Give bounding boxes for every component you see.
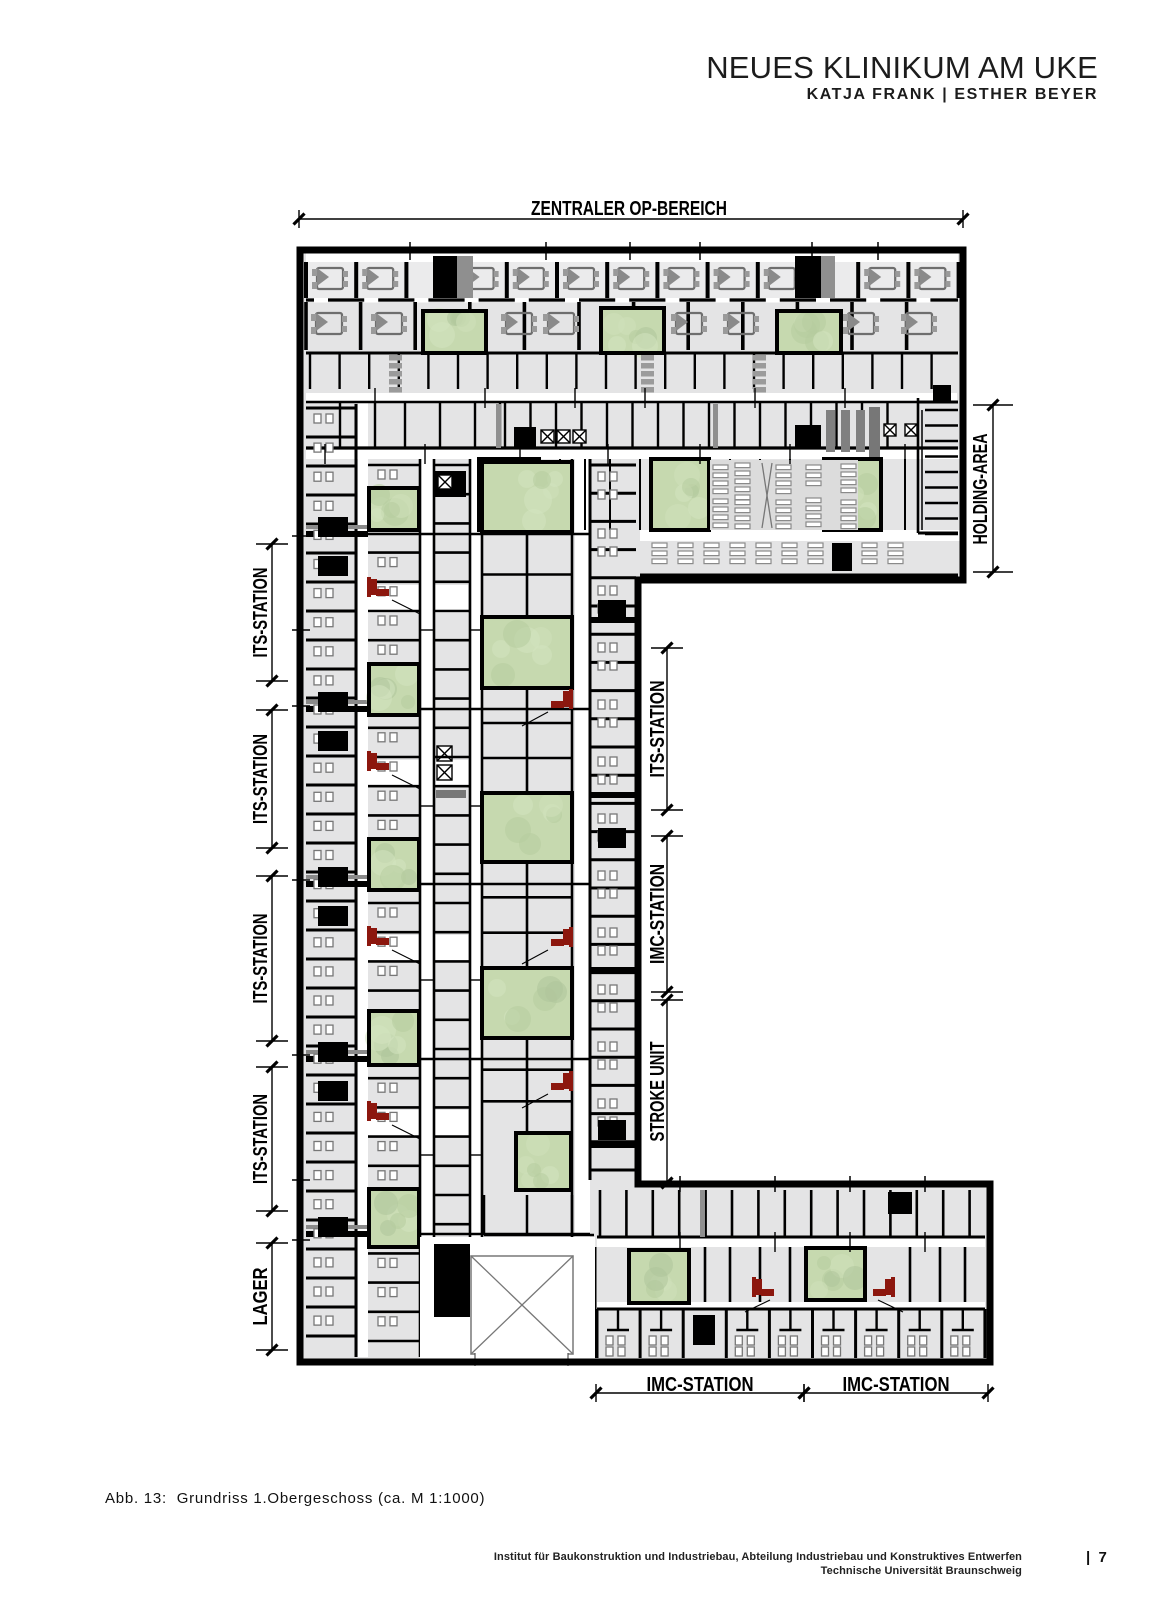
svg-text:STROKE UNIT: STROKE UNIT xyxy=(647,1042,669,1142)
svg-text:ITS-STATION: ITS-STATION xyxy=(250,1094,272,1184)
svg-text:ITS-STATION: ITS-STATION xyxy=(250,734,272,824)
svg-text:IMC-STATION: IMC-STATION xyxy=(647,864,669,964)
svg-text:ITS-STATION: ITS-STATION xyxy=(250,914,272,1004)
svg-text:ITS-STATION: ITS-STATION xyxy=(250,568,272,658)
svg-text:ZENTRALER OP-BEREICH: ZENTRALER OP-BEREICH xyxy=(531,198,727,220)
svg-text:HOLDING-AREA: HOLDING-AREA xyxy=(970,434,992,545)
svg-text:ITS-STATION: ITS-STATION xyxy=(647,681,669,778)
svg-text:LAGER: LAGER xyxy=(250,1267,272,1325)
